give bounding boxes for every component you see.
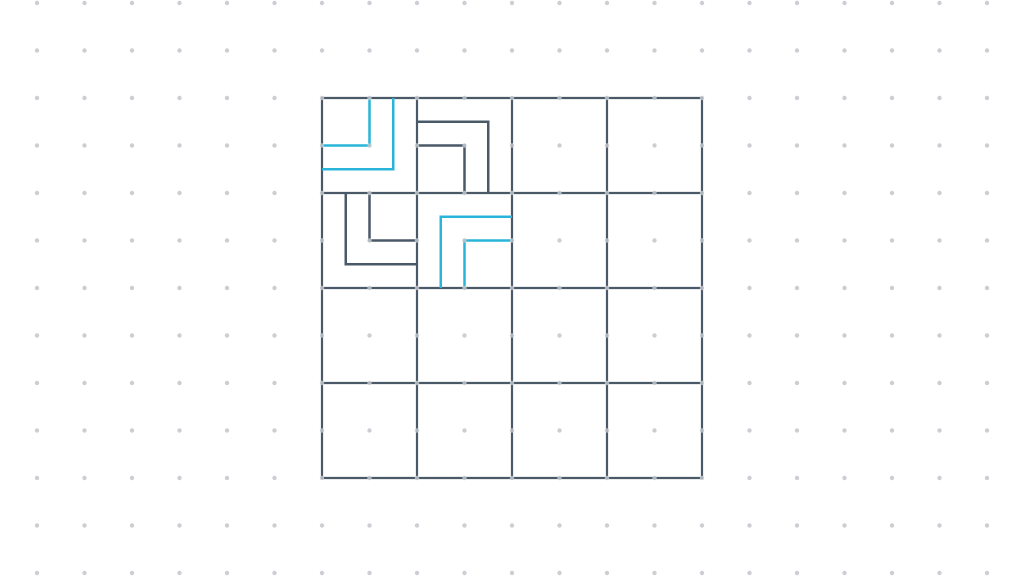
grid-dot (652, 333, 656, 337)
grid-dot (510, 1, 514, 5)
grid-dot (605, 191, 609, 195)
grid-dot (890, 523, 894, 527)
grid-dot (652, 476, 656, 480)
elbow-cell-0-0-outer (322, 98, 393, 169)
grid-dot (605, 381, 609, 385)
grid-dot (842, 571, 846, 575)
grid-dot (510, 286, 514, 290)
grid-dot (272, 96, 276, 100)
grid-dot (35, 238, 39, 242)
grid-dot (890, 238, 894, 242)
grid-dot (795, 143, 799, 147)
grid-dot (795, 191, 799, 195)
grid-dot (510, 428, 514, 432)
grid-dot (415, 238, 419, 242)
grid-dot (985, 1, 989, 5)
grid-dot (510, 571, 514, 575)
grid-dot (320, 476, 324, 480)
grid-dot (510, 143, 514, 147)
grid-dot (700, 381, 704, 385)
grid-dot (605, 48, 609, 52)
grid-dot (985, 523, 989, 527)
grid-dot (367, 333, 371, 337)
grid-dot (177, 523, 181, 527)
grid-dot (462, 238, 466, 242)
grid-dot (130, 381, 134, 385)
grid-dot (985, 48, 989, 52)
grid-dot (272, 476, 276, 480)
grid-dot (225, 238, 229, 242)
grid-dot (747, 333, 751, 337)
grid-dot (747, 143, 751, 147)
grid-dot (605, 143, 609, 147)
grid-dot (320, 143, 324, 147)
grid-dot (985, 238, 989, 242)
grid-dot (795, 286, 799, 290)
grid-dot (605, 238, 609, 242)
grid-dot (367, 96, 371, 100)
grid-dot (130, 191, 134, 195)
grid-dot (367, 286, 371, 290)
grid-dot (795, 523, 799, 527)
grid-dot (605, 571, 609, 575)
grid-dot (842, 523, 846, 527)
grid-dot (510, 381, 514, 385)
grid-dot (82, 96, 86, 100)
elbow-cell-0-1-inner (417, 146, 465, 194)
grid-dot (747, 238, 751, 242)
grid-dot (462, 571, 466, 575)
grid-dot (557, 286, 561, 290)
grid-dot (510, 333, 514, 337)
grid-dot (82, 191, 86, 195)
grid-dot (225, 143, 229, 147)
grid-dot (320, 96, 324, 100)
grid-dot (35, 428, 39, 432)
grid-dot (937, 143, 941, 147)
grid-dot (842, 333, 846, 337)
grid-dot (747, 48, 751, 52)
grid-dot (272, 238, 276, 242)
grid-dot (937, 286, 941, 290)
grid-dot (272, 143, 276, 147)
grid-dot (605, 286, 609, 290)
grid-dot (795, 428, 799, 432)
grid-dot (795, 571, 799, 575)
grid-dot (462, 286, 466, 290)
grid-dot (652, 48, 656, 52)
grid-dot (557, 381, 561, 385)
grid-dot (272, 1, 276, 5)
grid-dot (130, 571, 134, 575)
grid-dot (82, 143, 86, 147)
grid-dot (367, 143, 371, 147)
grid-dot (272, 428, 276, 432)
grid-dot (605, 428, 609, 432)
grid-dot (937, 476, 941, 480)
grid-dot (177, 428, 181, 432)
grid-dot (367, 191, 371, 195)
grid-dot (415, 571, 419, 575)
grid-dot (557, 238, 561, 242)
grid-dot (415, 381, 419, 385)
grid-dot (462, 476, 466, 480)
grid-dot (320, 333, 324, 337)
grid-dot (890, 571, 894, 575)
grid-dot (320, 381, 324, 385)
grid-dot (225, 286, 229, 290)
grid-dot (177, 238, 181, 242)
elbow-cell-1-0-outer (346, 193, 417, 264)
grid-dot (842, 286, 846, 290)
grid-dot (82, 333, 86, 337)
grid-dot (652, 428, 656, 432)
grid-dot (937, 333, 941, 337)
elbow-cell-0-1-outer (417, 122, 488, 193)
grid-dot (557, 1, 561, 5)
grid-dot (700, 523, 704, 527)
grid-dot (985, 428, 989, 432)
grid-dot (510, 48, 514, 52)
elbow-cell-0-0-inner (322, 98, 370, 146)
grid-dot (367, 48, 371, 52)
grid-dot (35, 48, 39, 52)
grid-dot (985, 191, 989, 195)
grid-dot (367, 381, 371, 385)
grid-dot (890, 286, 894, 290)
grid-dot (747, 1, 751, 5)
grid-dot (35, 143, 39, 147)
grid-dot (937, 571, 941, 575)
grid-dot (605, 96, 609, 100)
grid-dot (82, 238, 86, 242)
grid-dot (747, 381, 751, 385)
grid-dot (890, 428, 894, 432)
grid-dot (272, 48, 276, 52)
grid-dot (795, 381, 799, 385)
dot-grid (35, 1, 989, 575)
grid-dot (177, 191, 181, 195)
grid-dot (177, 48, 181, 52)
grid-dot (462, 428, 466, 432)
grid-dot (272, 333, 276, 337)
grid-dot (462, 381, 466, 385)
grid-dot (35, 476, 39, 480)
grid-dot (605, 333, 609, 337)
grid-dot (320, 191, 324, 195)
grid-dot (747, 571, 751, 575)
grid-dot (937, 238, 941, 242)
elbow-cell-1-0-inner (370, 193, 418, 241)
grid-dot (510, 238, 514, 242)
grid-dot (890, 143, 894, 147)
grid-dot (225, 523, 229, 527)
grid-dot (415, 96, 419, 100)
grid-dot (937, 191, 941, 195)
grid-dot (225, 571, 229, 575)
grid-dot (795, 476, 799, 480)
grid-dot (747, 428, 751, 432)
grid-dot (842, 96, 846, 100)
grid-dot (177, 571, 181, 575)
grid-dot (557, 96, 561, 100)
diagram-canvas (0, 0, 1024, 576)
grid-dot (320, 286, 324, 290)
grid-dot (272, 381, 276, 385)
grid-dot (652, 1, 656, 5)
grid-dot (985, 333, 989, 337)
grid-dot (462, 523, 466, 527)
grid-dot (890, 48, 894, 52)
grid-dot (130, 523, 134, 527)
elbow-cell-1-1-outer (441, 217, 512, 288)
grid-dot (985, 143, 989, 147)
grid-dot (177, 96, 181, 100)
grid-dot (415, 143, 419, 147)
grid-dot (795, 96, 799, 100)
grid-dot (130, 96, 134, 100)
grid-dot (842, 428, 846, 432)
grid-dot (605, 476, 609, 480)
grid-dot (415, 191, 419, 195)
grid-dot (795, 48, 799, 52)
grid-dot (700, 571, 704, 575)
grid-dot (272, 286, 276, 290)
grid-dot (130, 1, 134, 5)
grid-dot (225, 428, 229, 432)
grid-dot (842, 476, 846, 480)
grid-dot (462, 1, 466, 5)
grid-dot (890, 191, 894, 195)
grid-dot (82, 428, 86, 432)
grid-dot (890, 476, 894, 480)
grid-dot (82, 381, 86, 385)
grid-dot (985, 381, 989, 385)
grid-dot (225, 1, 229, 5)
grid-dot (795, 333, 799, 337)
grid-dot (367, 428, 371, 432)
grid-dot (937, 1, 941, 5)
grid-dot (82, 1, 86, 5)
grid-dot (130, 238, 134, 242)
grid-dot (35, 191, 39, 195)
grid-dot (652, 286, 656, 290)
grid-dot (320, 571, 324, 575)
grid-dot (35, 1, 39, 5)
grid-dot (652, 96, 656, 100)
grid-dot (747, 523, 751, 527)
grid-dot (700, 476, 704, 480)
grid-dot (985, 571, 989, 575)
grid-dot (842, 48, 846, 52)
grid-dot (272, 523, 276, 527)
grid-dot (177, 143, 181, 147)
grid-dot (890, 333, 894, 337)
grid-dot (367, 571, 371, 575)
grid-dot (890, 381, 894, 385)
grid-dot (225, 333, 229, 337)
grid-dot (890, 96, 894, 100)
grid-dot (937, 48, 941, 52)
grid-dot (557, 143, 561, 147)
grid-dot (842, 1, 846, 5)
grid-dot (415, 428, 419, 432)
grid-dot (652, 238, 656, 242)
grid-dot (130, 286, 134, 290)
grid-dot (35, 523, 39, 527)
grid-dot (985, 96, 989, 100)
grid-dot (35, 333, 39, 337)
grid-dot (842, 238, 846, 242)
grid-dot (652, 381, 656, 385)
grid-dot (510, 191, 514, 195)
grid-dot (842, 381, 846, 385)
grid-dot (225, 476, 229, 480)
grid-dot (225, 48, 229, 52)
grid-dot (462, 333, 466, 337)
grid-dot (415, 333, 419, 337)
grid-dot (320, 523, 324, 527)
grid-dot (747, 96, 751, 100)
grid-dot (130, 143, 134, 147)
grid-dot (462, 48, 466, 52)
grid-dot (652, 523, 656, 527)
grid-dot (82, 286, 86, 290)
elbow-cell-1-1-inner (465, 241, 513, 289)
grid-dot (462, 191, 466, 195)
grid-dot (557, 476, 561, 480)
grid-dot (272, 571, 276, 575)
grid-dot (415, 476, 419, 480)
grid-dot (320, 238, 324, 242)
grid-dot (652, 143, 656, 147)
grid-dot (462, 143, 466, 147)
grid-dot (557, 523, 561, 527)
grid-dot (82, 476, 86, 480)
grid-dot (795, 238, 799, 242)
grid-dot (225, 96, 229, 100)
grid-dot (652, 571, 656, 575)
grid-dot (320, 1, 324, 5)
grid-dot (890, 1, 894, 5)
grid-dot (415, 286, 419, 290)
grid-dot (747, 476, 751, 480)
grid-dot (557, 571, 561, 575)
grid-dot (700, 286, 704, 290)
grid-dot (177, 476, 181, 480)
grid-dot (557, 191, 561, 195)
grid-dot (367, 476, 371, 480)
grid-dot (367, 1, 371, 5)
grid-dot (510, 476, 514, 480)
grid-dot (700, 238, 704, 242)
grid-dot (985, 286, 989, 290)
grid-dot (795, 1, 799, 5)
grid-dot (937, 96, 941, 100)
grid-dot (700, 143, 704, 147)
grid-dot (700, 428, 704, 432)
grid-dot (937, 428, 941, 432)
grid-dot (700, 1, 704, 5)
grid-dot (747, 286, 751, 290)
grid-dot (320, 428, 324, 432)
grid-dot (320, 48, 324, 52)
grid-dot (937, 381, 941, 385)
grid-dot (462, 96, 466, 100)
grid-dot (177, 286, 181, 290)
grid-dot (130, 48, 134, 52)
grid-dot (510, 523, 514, 527)
puzzle-scene-svg (0, 0, 1024, 576)
grid-dot (747, 191, 751, 195)
grid-dot (177, 1, 181, 5)
grid-dot (177, 333, 181, 337)
grid-dot (225, 381, 229, 385)
grid-dot (272, 191, 276, 195)
grid-dot (82, 523, 86, 527)
grid-dot (130, 428, 134, 432)
grid-dot (367, 523, 371, 527)
grid-dot (842, 143, 846, 147)
grid-dot (652, 191, 656, 195)
grid-dot (557, 333, 561, 337)
grid-dot (510, 96, 514, 100)
grid-dot (700, 333, 704, 337)
grid-dot (842, 191, 846, 195)
grid-dot (557, 428, 561, 432)
grid-dot (82, 571, 86, 575)
grid-dot (35, 96, 39, 100)
grid-dot (130, 476, 134, 480)
grid-dot (225, 191, 229, 195)
grid-dot (415, 523, 419, 527)
grid-dot (35, 571, 39, 575)
grid-dot (415, 48, 419, 52)
grid-dot (367, 238, 371, 242)
grid-dot (605, 1, 609, 5)
grid-dot (605, 523, 609, 527)
grid-dot (82, 48, 86, 52)
grid-dot (415, 1, 419, 5)
grid-dot (700, 48, 704, 52)
grid-dot (557, 48, 561, 52)
grid-dot (35, 286, 39, 290)
grid-dot (35, 381, 39, 385)
grid-dot (177, 381, 181, 385)
grid-dot (985, 476, 989, 480)
grid-dot (700, 96, 704, 100)
grid-dot (130, 333, 134, 337)
grid-dot (700, 191, 704, 195)
grid-dot (937, 523, 941, 527)
